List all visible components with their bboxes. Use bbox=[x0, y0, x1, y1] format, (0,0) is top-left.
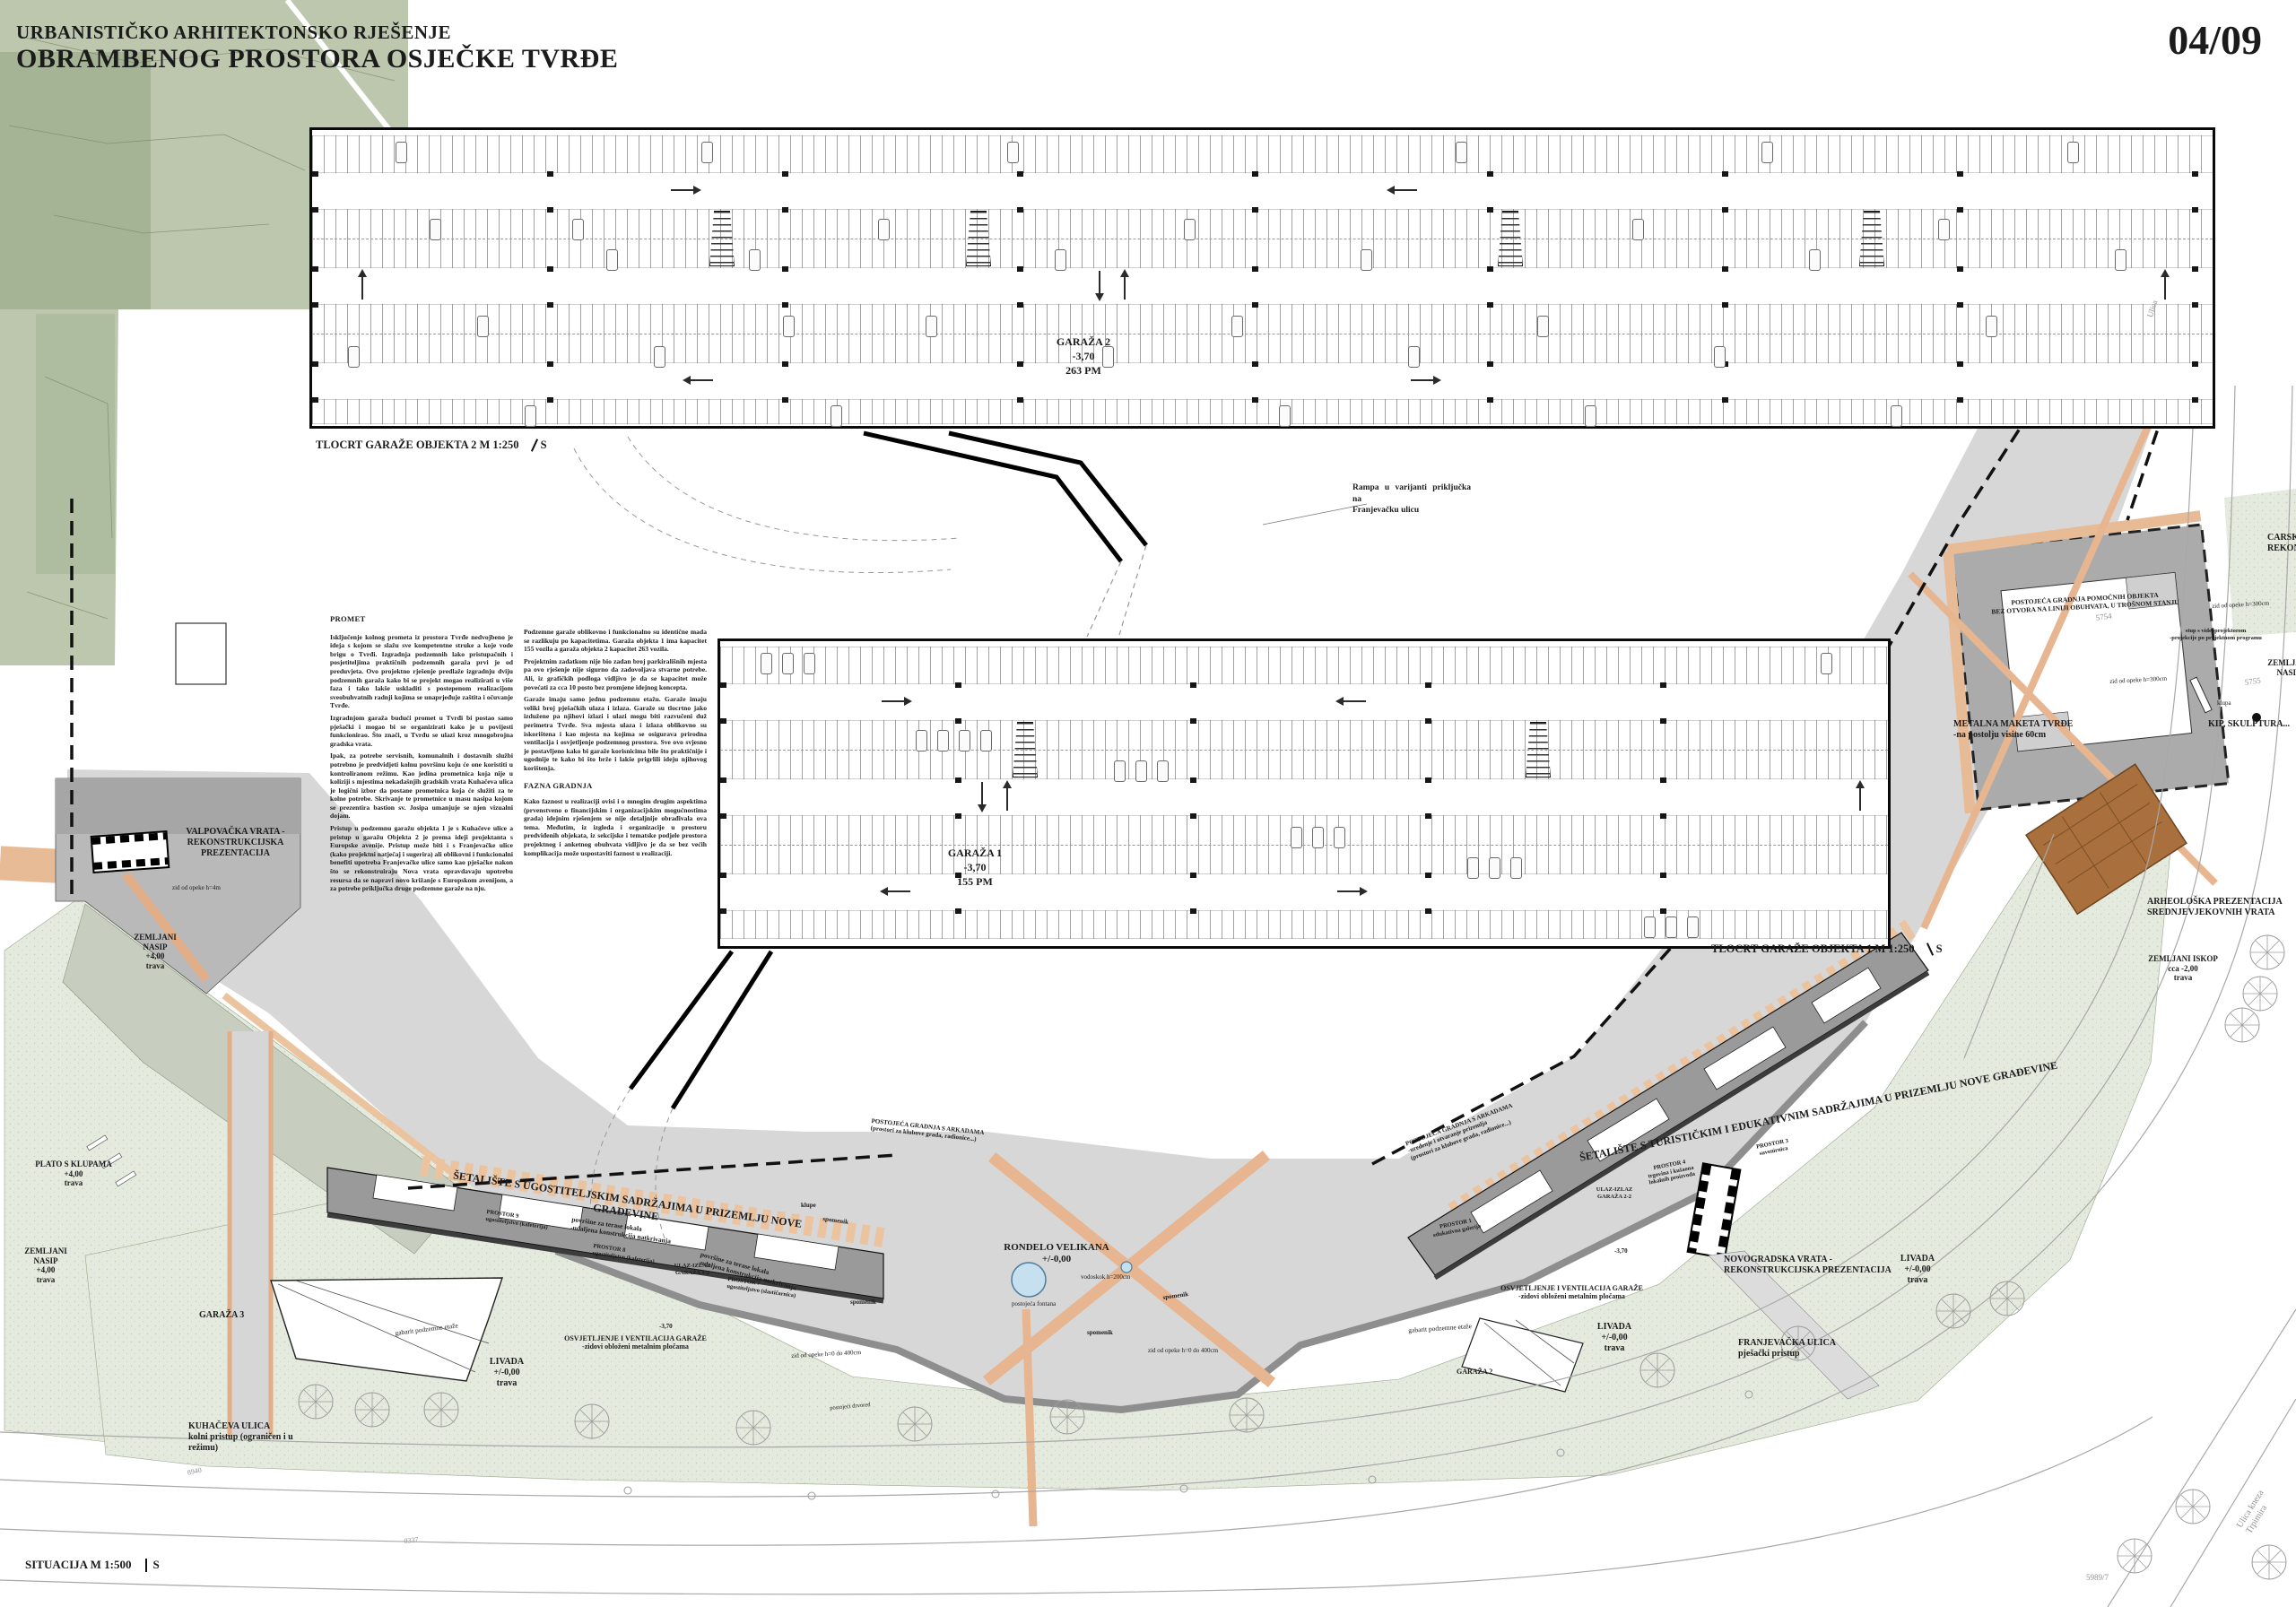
label-benches: klupe bbox=[801, 1202, 816, 1209]
label-carska: CARSKA REKON bbox=[2267, 533, 2296, 554]
label-meadow-right: LIVADA +/-0,00 trava bbox=[1882, 1254, 1953, 1285]
label-video-projector-pole: stup s videoprojektorom -projekcije po p… bbox=[2160, 628, 2272, 641]
car-icon bbox=[783, 316, 795, 337]
direction-arrow-icon bbox=[882, 890, 910, 892]
car-icon bbox=[701, 142, 713, 163]
label-earth-embankment-1: ZEMLJANI NASIP +4,00 trava bbox=[117, 933, 194, 970]
car-icon bbox=[1632, 219, 1644, 240]
label-metal-model: METALNA MAKETA TVRĐE -na postolju visine… bbox=[1953, 719, 2073, 741]
label-kuhaceva-street: KUHAČEVA ULICA kolni pristup (ograničen … bbox=[188, 1421, 293, 1453]
label-entry-exit-2-2: ULAZ-IZLAZ GARAŽA 2-2 bbox=[1587, 1186, 1641, 1200]
label-meadow-left: LIVADA +/-0,00 trava bbox=[474, 1357, 540, 1388]
garage-2-caption: TLOCRT GARAŽE OBJEKTA 2 M 1:250 S bbox=[316, 439, 547, 452]
car-icon bbox=[959, 730, 970, 751]
existing-building bbox=[176, 623, 226, 684]
paragraph: Garaže imaju samo jednu podzemnu etažu. … bbox=[524, 695, 707, 772]
sheet-number: 04/09 bbox=[2168, 16, 2262, 64]
car-icon bbox=[1821, 653, 1832, 674]
label-novogradska-gate: NOVOGRADSKA VRATA - REKONSTRUKCIJSKA PRE… bbox=[1724, 1255, 1892, 1276]
car-icon bbox=[1467, 857, 1479, 879]
garage-1-label: GARAŽA 1 -3,70 155 PM bbox=[912, 846, 1038, 890]
car-icon bbox=[654, 346, 665, 368]
car-icon bbox=[430, 219, 441, 240]
direction-arrow-icon bbox=[1337, 700, 1366, 702]
direction-arrow-icon bbox=[1099, 271, 1100, 300]
kuhaceva-street bbox=[229, 1031, 272, 1437]
label-garage-lighting-left: OSVJETLJENJE I VENTILACIJA GARAŽE -zidov… bbox=[544, 1334, 727, 1351]
car-icon bbox=[2115, 249, 2126, 271]
car-icon bbox=[1135, 760, 1147, 782]
car-icon bbox=[1644, 916, 1656, 938]
drawing-sheet: { "sheet": { "title_line1": "URBANISTIČK… bbox=[0, 0, 2296, 1607]
car-icon bbox=[348, 346, 360, 368]
car-icon bbox=[1157, 760, 1169, 782]
car-icon bbox=[572, 219, 584, 240]
paragraph: Podzemne garaže oblikovno i funkcionalno… bbox=[524, 628, 707, 654]
direction-arrow-icon bbox=[1411, 379, 1439, 381]
car-icon bbox=[1456, 142, 1467, 163]
valpovacka-gate bbox=[91, 831, 170, 873]
direction-arrow-icon bbox=[671, 189, 700, 191]
car-icon bbox=[1986, 316, 1997, 337]
label-level-minus-370-left: -3,70 bbox=[659, 1323, 673, 1330]
sheet-container: { "sheet": { "title_line1": "URBANISTIČK… bbox=[0, 0, 2296, 1607]
car-icon bbox=[1408, 346, 1420, 368]
paragraph: Pristup u podzemnu garažu objekta 1 je s… bbox=[330, 824, 513, 893]
label-meadow-mid: LIVADA +/-0,00 trava bbox=[1581, 1322, 1648, 1353]
car-icon bbox=[1334, 827, 1345, 848]
car-icon bbox=[749, 249, 761, 271]
label-monument-2: spomenik bbox=[850, 1299, 876, 1306]
car-icon bbox=[1761, 142, 1773, 163]
label-valpovacka-gate: VALPOVAČKA VRATA - REKONSTRUKCIJSKA PREZ… bbox=[166, 827, 305, 858]
water-jet bbox=[1121, 1262, 1132, 1273]
car-icon bbox=[1489, 857, 1500, 879]
existing-fountain bbox=[1012, 1263, 1046, 1297]
label-archaeological-presentation: ARHEOLOŠKA PREZENTACIJA SREDNJEVJEKOVNIH… bbox=[2147, 897, 2283, 918]
label-bench-plateau: PLATO S KLUPAMA +4,00 trava bbox=[22, 1160, 126, 1188]
car-icon bbox=[1007, 142, 1019, 163]
sheet-title-line2: OBRAMBENOG PROSTORA OSJEČKE TVRĐE bbox=[16, 43, 618, 74]
car-icon bbox=[1714, 346, 1726, 368]
direction-arrow-icon bbox=[1388, 189, 1417, 191]
paragraph: Projektnim zadatkom nije bio zadan broj … bbox=[524, 657, 707, 691]
car-icon bbox=[1809, 249, 1821, 271]
garage-2-label: GARAŽA 2 -3,70 263 PM bbox=[1021, 334, 1146, 378]
car-icon bbox=[1687, 916, 1699, 938]
paragraph: Isključenje kolnog prometa iz prostora T… bbox=[330, 633, 513, 710]
car-icon bbox=[396, 142, 407, 163]
car-icon bbox=[1891, 405, 1902, 427]
label-level-minus-370-right: -3,70 bbox=[1614, 1247, 1628, 1255]
direction-arrow-icon bbox=[1124, 271, 1126, 300]
car-icon bbox=[926, 316, 937, 337]
car-icon bbox=[1537, 316, 1549, 337]
direction-arrow-icon bbox=[2164, 271, 2166, 300]
car-icon bbox=[1291, 827, 1302, 848]
paragraph: Kako faznost u realizaciji ovisi i o mno… bbox=[524, 797, 707, 857]
label-water-jet: vodoskok h=200cm bbox=[1081, 1273, 1130, 1281]
paragraph: Ipak, za potrebe servisnih, komunalnih i… bbox=[330, 751, 513, 821]
car-icon bbox=[916, 730, 927, 751]
label-franjevacka-street: FRANJEVAČKA ULICA pješački pristup bbox=[1738, 1338, 1836, 1359]
car-icon bbox=[477, 316, 489, 337]
label-rondel: RONDELO VELIKANA +/-0,00 bbox=[1003, 1242, 1110, 1265]
car-icon bbox=[980, 730, 992, 751]
car-icon bbox=[1279, 405, 1291, 427]
direction-arrow-icon bbox=[684, 379, 713, 381]
contour-number-0337: 0337 bbox=[404, 1535, 419, 1545]
car-icon bbox=[782, 653, 794, 674]
label-garage-2-site: GARAŽA 2 bbox=[1457, 1368, 1492, 1376]
sheet-title-line1: URBANISTIČKO ARHITEKTONSKO RJEŠENJE bbox=[16, 22, 451, 44]
car-icon bbox=[878, 219, 890, 240]
car-icon bbox=[761, 653, 772, 674]
car-icon bbox=[1114, 760, 1126, 782]
direction-arrow-icon bbox=[981, 782, 983, 811]
label-earth-embankment-2: ZEMLJANI NASIP +4,00 trava bbox=[5, 1247, 86, 1284]
car-icon bbox=[1184, 219, 1196, 240]
parcel-number-5989-7: 5989/7 bbox=[2086, 1573, 2109, 1583]
car-icon bbox=[1231, 316, 1243, 337]
garage-2-floor-plan: GARAŽA 2 -3,70 263 PM bbox=[309, 127, 2215, 429]
ramp-variant-note: Rampa u varijanti priključka na Franjeva… bbox=[1352, 482, 1471, 517]
north-arrow-icon bbox=[530, 439, 537, 451]
direction-arrow-icon bbox=[1337, 890, 1366, 892]
direction-arrow-icon bbox=[882, 700, 910, 702]
car-icon bbox=[804, 653, 815, 674]
car-icon bbox=[1585, 405, 1596, 427]
direction-arrow-icon bbox=[1006, 782, 1008, 811]
car-icon bbox=[1055, 249, 1066, 271]
label-existing-fountain: postojeća fontana bbox=[1012, 1300, 1056, 1307]
car-icon bbox=[2067, 142, 2079, 163]
label-earth-excavation: ZEMLJANI ISKOP cca -2,00 trava bbox=[2140, 954, 2226, 983]
north-arrow-icon bbox=[1926, 942, 1933, 955]
car-icon bbox=[606, 249, 618, 271]
direction-arrow-icon bbox=[361, 271, 363, 300]
label-garage-lighting-right: OSVJETLJENJE I VENTILACIJA GARAŽE -zidov… bbox=[1480, 1284, 1664, 1301]
north-arrow-icon bbox=[145, 1559, 147, 1572]
direction-arrow-icon bbox=[1859, 782, 1861, 811]
heading-promet: PROMET bbox=[330, 615, 513, 624]
label-earth-embankment-right: ZEMLJANI NASIP bbox=[2262, 658, 2296, 677]
situation-caption: SITUACIJA M 1:500 S bbox=[25, 1558, 160, 1572]
label-statue-sculpture: KIP, SKULPTURA... bbox=[2208, 719, 2290, 730]
car-icon bbox=[1510, 857, 1522, 879]
label-garage-3: GARAŽA 3 bbox=[199, 1310, 244, 1321]
label-brick-wall-0-400-mid: zid od opeke h=0 do 400cm bbox=[1148, 1347, 1218, 1354]
car-icon bbox=[1312, 827, 1324, 848]
car-icon bbox=[1361, 249, 1372, 271]
label-brick-wall-4m: zid od opeke h=4m bbox=[172, 884, 221, 891]
label-monument-4: spomenik bbox=[1087, 1329, 1113, 1336]
garage-1-floor-plan: GARAŽA 1 -3,70 155 PM bbox=[717, 638, 1891, 949]
paragraph: Izgradnjom garaža budući promet u Tvrđi … bbox=[330, 714, 513, 748]
car-icon bbox=[937, 730, 949, 751]
garage-1-caption: TLOCRT GARAŽE OBJEKTA 1 M 1:250 S bbox=[1711, 942, 1943, 956]
car-icon bbox=[525, 405, 536, 427]
label-bench: klupa bbox=[2217, 699, 2231, 707]
car-icon bbox=[831, 405, 842, 427]
heading-fazna-gradnja: FAZNA GRADNJA bbox=[524, 782, 707, 791]
car-icon bbox=[1665, 916, 1677, 938]
car-icon bbox=[1938, 219, 1950, 240]
